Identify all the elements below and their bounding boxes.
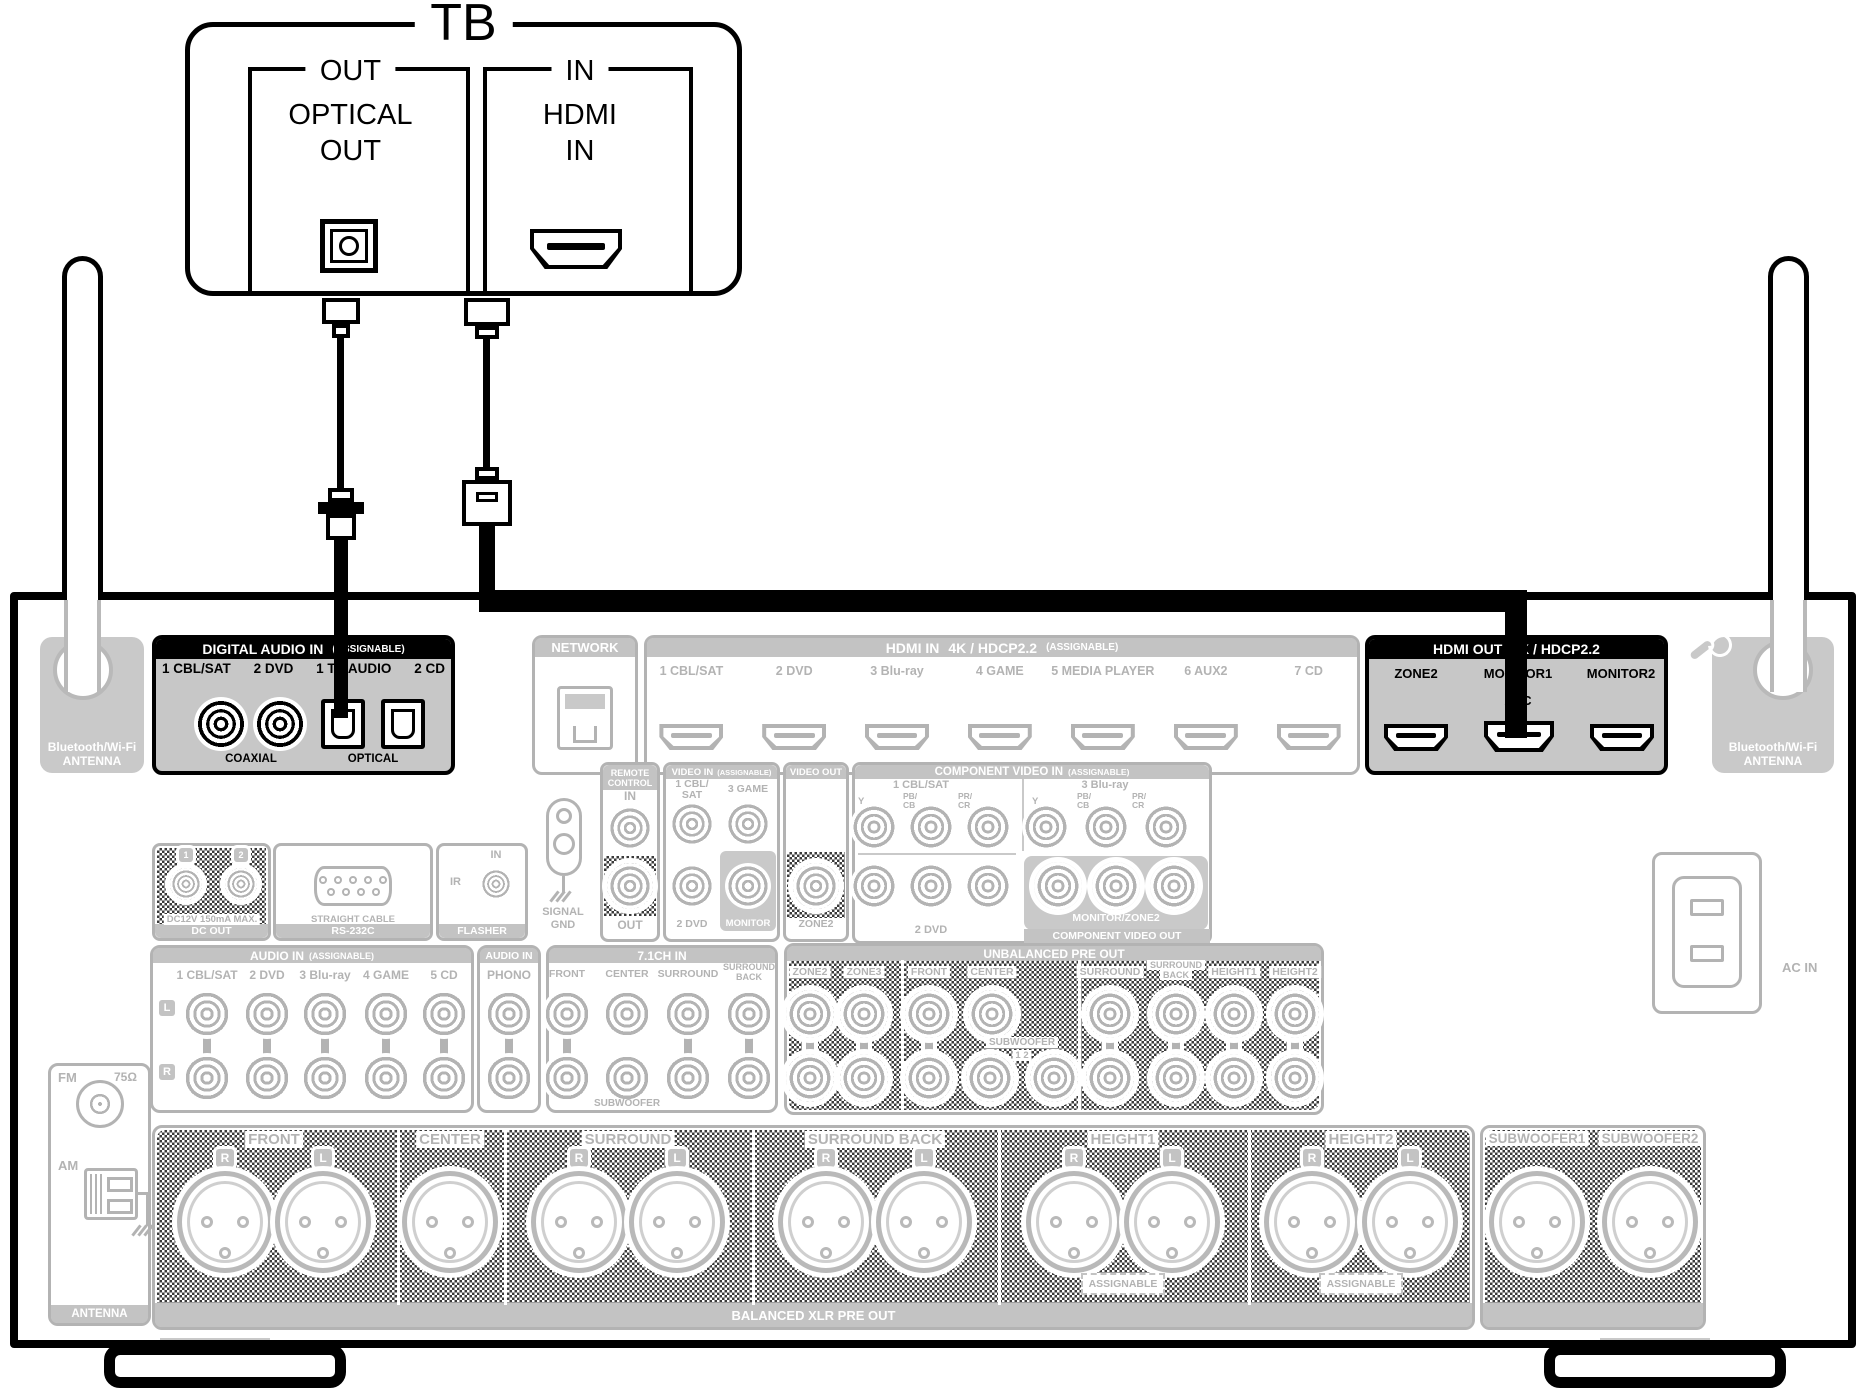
hdmi-port-label: 7 CD	[1294, 664, 1322, 678]
group-divider	[1248, 1129, 1251, 1305]
hdmi-out-monitor2-port-icon	[1590, 724, 1654, 751]
xlr-r-chip: R	[570, 1149, 588, 1167]
tv-optical-port-icon	[320, 219, 378, 273]
pre-out-jack	[1152, 990, 1200, 1038]
assignable-badge: ASSIGNABLE	[1081, 1273, 1165, 1295]
antenna-rod-base-right	[1770, 598, 1807, 692]
audio-jack	[300, 989, 350, 1039]
xlr-front-label: FRONT	[245, 1131, 303, 1148]
antenna-rod-right	[1768, 256, 1809, 600]
pre-out-jack	[786, 990, 834, 1038]
audio-port-label: 2 DVD	[249, 968, 284, 982]
header-note: (ASSIGNABLE)	[1068, 767, 1129, 777]
am-label: AM	[58, 1158, 78, 1173]
bt-label-1: Bluetooth/Wi-Fi	[48, 740, 137, 754]
component-out-jack	[1034, 862, 1082, 910]
tv-optical-label-1: OPTICAL	[288, 99, 412, 132]
hdmi-port-label: 4 GAME	[976, 664, 1024, 678]
video-in-header: VIDEO IN (ASSIGNABLE)	[666, 765, 777, 779]
am-ground-wire	[146, 1192, 149, 1226]
flasher-ir-jack	[480, 868, 512, 900]
video-in-game-label: 3 GAME	[728, 783, 768, 795]
unbal-height1-label: HEIGHT1	[1208, 966, 1260, 978]
ch71-jack	[663, 989, 713, 1039]
unbal-height2-label: HEIGHT2	[1269, 966, 1321, 978]
header-note: (ASSIGNABLE)	[309, 951, 374, 961]
xlr-connector	[1124, 1171, 1220, 1273]
hdmi-port-icon	[1071, 724, 1135, 750]
port-label: 2 DVD	[254, 661, 294, 676]
ch71-jack	[602, 1053, 652, 1103]
fm-label: FM	[58, 1070, 77, 1085]
chassis-foot-left	[104, 1344, 346, 1388]
phono-jack-l	[484, 989, 534, 1039]
ch71-sb-label-2: BACK	[736, 972, 762, 982]
hdmi-plug-top	[464, 298, 510, 326]
component-divider-h	[858, 853, 1016, 855]
subwoofer-xlr-footer	[1483, 1303, 1703, 1327]
component-jack	[850, 803, 898, 851]
bt-label-2: ANTENNA	[63, 754, 122, 768]
pre-out-jack	[786, 1054, 834, 1102]
flasher-ir-label: IR	[450, 876, 461, 888]
tv-out-group-label: OUT	[306, 55, 395, 88]
component-video-out-header: COMPONENT VIDEO OUT	[1024, 929, 1210, 943]
header-line2: CONTROL	[608, 778, 653, 788]
hdmi-port-icon	[659, 724, 723, 750]
ground-post-hole	[556, 808, 572, 824]
dc-out-2-chip: 2	[234, 848, 248, 862]
dc-out-spec: DC12V 150mA MAX.	[164, 914, 260, 925]
pre-out-jack	[1086, 1054, 1134, 1102]
ch71-jack	[663, 1053, 713, 1103]
xlr-connector	[531, 1171, 627, 1273]
ethernet-port-icon	[557, 686, 613, 750]
video-out-zone2-jack	[793, 863, 839, 909]
ch71-jack	[542, 1053, 592, 1103]
component-jack	[907, 803, 955, 851]
hdmi-port-label: 2 DVD	[776, 664, 813, 678]
am-terminal-slot	[107, 1199, 133, 1214]
chassis-foot-right	[1544, 1344, 1786, 1388]
component-video-in-header: COMPONENT VIDEO IN (ASSIGNABLE)	[855, 765, 1209, 779]
remote-out-jack	[607, 863, 653, 909]
cr-label: CR	[1132, 800, 1144, 810]
signal-gnd-label-1: SIGNAL	[542, 906, 584, 918]
pre-out-jack	[840, 1054, 888, 1102]
hdmi-in-port: 3 Blu-ray	[846, 664, 949, 750]
tv-hdmi-label-1: HDMI	[543, 99, 617, 132]
xlr-surround-label: SURROUND	[582, 1131, 675, 1148]
header-text: VIDEO IN	[672, 767, 714, 778]
hdmi-port-icon	[968, 724, 1032, 750]
network-header: NETWORK	[535, 638, 635, 657]
tv-title: TB	[414, 0, 512, 53]
digital-audio-port-labels: 1 CBL/SAT 2 DVD 1 TV AUDIO 2 CD	[162, 661, 445, 676]
audio-jack	[300, 1053, 350, 1103]
unbal-zone2-label: ZONE2	[789, 966, 830, 978]
video-monitor-jack	[725, 863, 771, 909]
remote-in-jack	[607, 805, 653, 851]
hdmi-cable-vertical-right	[1505, 590, 1527, 738]
tv-optical-port-hole	[339, 236, 359, 256]
ch71-subwoofer-label: SUBWOOFER	[594, 1098, 660, 1109]
phono-jack-r	[484, 1053, 534, 1103]
pre-out-jack	[1152, 1054, 1200, 1102]
unbal-zone3-label: ZONE3	[843, 966, 884, 978]
pre-out-jack	[1210, 990, 1258, 1038]
hdmi-plug2-body	[462, 480, 512, 526]
component-out-jack	[1092, 862, 1140, 910]
xlr-connector	[629, 1171, 725, 1273]
fm-coax-jack	[76, 1080, 124, 1128]
component-jack	[907, 862, 955, 910]
unbal-subwoofer-nums: 1 2	[1012, 1050, 1031, 1061]
signal-gnd-label-2: GND	[551, 919, 575, 931]
bt-label-1: Bluetooth/Wi-Fi	[1729, 740, 1818, 754]
tv-hdmi-in-box: IN HDMI IN	[483, 67, 693, 296]
component-jack	[1082, 803, 1130, 851]
audio-jack	[419, 1053, 469, 1103]
video-in-dvd-jack	[669, 863, 715, 909]
xlr-connector	[876, 1171, 972, 1273]
xlr-r-chip: R	[1065, 1149, 1083, 1167]
video-in-dvd-label: 2 DVD	[677, 918, 708, 930]
xlr-connector	[1264, 1171, 1360, 1273]
flasher-in-label: IN	[491, 849, 502, 861]
am-ground-symbol-icon	[132, 1224, 150, 1242]
ch71-sb-label-1: SURROUND	[723, 962, 775, 972]
xlr-height2-label: HEIGHT2	[1325, 1131, 1396, 1148]
xlr-l-chip: L	[1163, 1149, 1181, 1167]
xlr-l-chip: L	[915, 1149, 933, 1167]
hdmi-out-zone2-port-icon	[1384, 724, 1448, 751]
left-channel-chip: L	[159, 1000, 175, 1016]
port-label: 1 CBL/SAT	[162, 661, 231, 676]
balanced-xlr-header: BALANCED XLR PRE OUT	[155, 1303, 1472, 1327]
hdmi-in-ports: 1 CBL/SAT 2 DVD 3 Blu-ray 4 GAME 5 MEDIA…	[640, 664, 1360, 750]
pre-out-jack	[905, 990, 953, 1038]
dc-out-jack-1	[170, 868, 202, 900]
pre-out-jack	[1210, 1054, 1258, 1102]
header-line1: REMOTE	[611, 768, 650, 778]
ac-inlet-slot	[1690, 899, 1724, 916]
hdmi-port-icon	[865, 724, 929, 750]
xlr-surround-back-label: SURROUND BACK	[805, 1131, 945, 1148]
ch71-surround-label: SURROUND	[658, 968, 719, 980]
hdmi-cable-thin	[483, 339, 490, 467]
ground-post-screw	[553, 833, 575, 855]
xlr-connector	[177, 1171, 273, 1273]
hdmi-cable-horizontal	[479, 590, 1527, 612]
cb-label: CB	[903, 800, 915, 810]
ch71-jack	[542, 989, 592, 1039]
rs232c-port-icon	[314, 866, 392, 906]
ac-inlet-slot	[1690, 945, 1724, 962]
audio-port-label: 1 CBL/SAT	[176, 968, 237, 982]
pre-out-jack	[968, 990, 1016, 1038]
flasher-header: FLASHER	[439, 924, 525, 938]
hdmi-in-port: 5 MEDIA PLAYER	[1051, 664, 1154, 750]
xlr-l-chip: L	[314, 1149, 332, 1167]
header-spec: 4K / HDCP2.2	[948, 640, 1037, 656]
pre-out-jack	[905, 1054, 953, 1102]
hdmi-plug2-neck	[475, 467, 499, 480]
unbal-center-label: CENTER	[967, 966, 1016, 978]
xlr-subwoofer1-label: SUBWOOFER1	[1486, 1131, 1589, 1146]
xlr-height1-label: HEIGHT1	[1087, 1131, 1158, 1148]
audio-jack	[182, 989, 232, 1039]
bt-label-2: ANTENNA	[1744, 754, 1803, 768]
audio-jack	[361, 1053, 411, 1103]
unbal-sb-label-1: SURROUND	[1147, 960, 1205, 970]
assignable-badge: ASSIGNABLE	[1319, 1273, 1403, 1295]
xlr-r-chip: R	[216, 1149, 234, 1167]
ch71-header: 7.1CH IN	[549, 948, 775, 963]
tv-optical-out-box: OUT OPTICAL OUT	[248, 67, 470, 296]
am-terminal-icon	[84, 1168, 138, 1220]
xlr-connector	[402, 1171, 498, 1273]
hdmi-port-label: 3 Blu-ray	[870, 664, 924, 678]
rs232c-header: RS-232C	[276, 924, 430, 938]
component-g2-label: 3 Blu-ray	[1081, 779, 1128, 791]
digital-audio-in-header: DIGITAL AUDIO IN (ASSIGNABLE)	[156, 639, 451, 659]
hdmi-plug2-detail	[476, 492, 498, 502]
ac-in-label: AC IN	[1782, 960, 1817, 975]
hdmi-port-label: 5 MEDIA PLAYER	[1051, 664, 1154, 678]
phono-label: PHONO	[487, 968, 531, 982]
video-in-game-jack	[725, 801, 771, 847]
video-monitor-label: MONITOR	[726, 918, 771, 929]
hdmi-in-port: 2 DVD	[743, 664, 846, 750]
audio-port-label: 4 GAME	[363, 968, 409, 982]
hdmi-port-label: 6 AUX2	[1184, 664, 1227, 678]
optical-port-cd	[381, 699, 425, 749]
unbal-surround-label: SURROUND	[1077, 966, 1144, 978]
audio-in-header: AUDIO IN (ASSIGNABLE)	[153, 948, 471, 963]
header-text: HDMI OUT	[1433, 641, 1502, 657]
pre-out-jack	[1271, 1054, 1319, 1102]
audio-port-label: 3 Blu-ray	[299, 968, 350, 982]
ch71-jack	[602, 989, 652, 1039]
optical-plug2-body	[326, 514, 356, 540]
hdmi-port-icon	[1174, 724, 1238, 750]
tv-optical-label-2: OUT	[320, 135, 381, 168]
unbalanced-header: UNBALANCED PRE OUT	[787, 946, 1321, 961]
pre-out-jack	[1086, 990, 1134, 1038]
antenna-header: ANTENNA	[51, 1305, 148, 1323]
xlr-l-chip: L	[668, 1149, 686, 1167]
am-terminal-slot	[107, 1177, 133, 1192]
coaxial-jack-dvd	[253, 697, 307, 751]
pre-out-jack	[966, 1054, 1014, 1102]
remote-out-label: OUT	[617, 918, 642, 932]
header-text: DIGITAL AUDIO IN	[202, 641, 323, 657]
phono-header: AUDIO IN	[480, 948, 538, 963]
video-in-cbl-jack	[669, 801, 715, 847]
antenna-rod-left	[62, 256, 103, 600]
hdmi-in-port: 4 GAME	[948, 664, 1051, 750]
optical-plug2-flange	[318, 502, 364, 514]
group-divider	[998, 1129, 1001, 1305]
xlr-connector	[1026, 1171, 1122, 1273]
audio-jack	[361, 989, 411, 1039]
audio-jack	[419, 989, 469, 1039]
group-divider	[752, 1129, 755, 1305]
tv-in-group-label: IN	[551, 55, 608, 88]
header-note: (ASSIGNABLE)	[1046, 642, 1118, 653]
hdmi-in-port: 6 AUX2	[1154, 664, 1257, 750]
unbal-front-label: FRONT	[908, 966, 950, 978]
rs232c-spec: STRAIGHT CABLE	[311, 914, 395, 925]
right-channel-chip: R	[159, 1064, 175, 1080]
dc-out-header: DC OUT	[155, 924, 268, 938]
unbal-sb-label-2: BACK	[1160, 970, 1192, 980]
xlr-subwoofer2-label: SUBWOOFER2	[1599, 1131, 1702, 1146]
component-jack	[1022, 803, 1070, 851]
hdmi-port-label: 1 CBL/SAT	[660, 664, 724, 678]
header-text: HDMI IN	[886, 640, 940, 656]
ch71-jack	[724, 989, 774, 1039]
xlr-connector	[778, 1171, 874, 1273]
tv-hdmi-port-icon	[530, 229, 622, 269]
hdmi-in-header: HDMI IN 4K / HDCP2.2 (ASSIGNABLE)	[647, 638, 1357, 657]
component-g3-label: 2 DVD	[915, 924, 947, 936]
optical-label: OPTICAL	[348, 753, 398, 765]
antenna-rod-base-left	[64, 598, 101, 692]
xlr-center-label: CENTER	[416, 1131, 484, 1148]
coaxial-jack-cbl-sat	[194, 697, 248, 751]
port-label: 2 CD	[414, 661, 445, 676]
hdmi-port-icon	[762, 724, 826, 750]
group-divider	[901, 960, 904, 1110]
am-terminal-hatch	[90, 1174, 102, 1214]
hdmi-in-port: 7 CD	[1257, 664, 1360, 750]
component-jack	[850, 862, 898, 910]
cb-label: CB	[1077, 800, 1089, 810]
video-in-cbl-label-2: SAT	[682, 789, 702, 801]
xlr-r-chip: R	[817, 1149, 835, 1167]
remote-control-header: REMOTE CONTROL	[603, 765, 657, 790]
dc-out-1-chip: 1	[179, 848, 193, 862]
group-divider	[397, 1129, 400, 1305]
optical-plug-tip	[332, 324, 350, 338]
ch71-jack	[724, 1053, 774, 1103]
xlr-connector	[1602, 1171, 1698, 1273]
component-g1-label: 1 CBL/SAT	[893, 779, 949, 791]
ch71-center-label: CENTER	[605, 968, 648, 980]
pre-out-jack	[840, 990, 888, 1038]
xlr-connector	[1362, 1171, 1458, 1273]
hdmi-out-zone2-label: ZONE2	[1394, 666, 1437, 681]
component-jack	[1142, 803, 1190, 851]
component-jack	[964, 862, 1012, 910]
optical-cable-thick	[334, 540, 348, 718]
xlr-l-chip: L	[1401, 1149, 1419, 1167]
ch71-front-label: FRONT	[549, 968, 585, 980]
audio-jack	[242, 1053, 292, 1103]
hdmi-plug-top-neck	[475, 326, 499, 339]
optical-plug2-neck	[328, 488, 354, 502]
av-receiver-connection-diagram: { "tv": {"title":"TB","out_group":"OUT",…	[0, 0, 1866, 1379]
audio-jack	[182, 1053, 232, 1103]
group-divider	[1078, 960, 1081, 1110]
hdmi-out-monitor2-label: MONITOR2	[1587, 666, 1655, 681]
coaxial-label: COAXIAL	[225, 753, 277, 765]
component-out-jack	[1150, 862, 1198, 910]
audio-jack	[242, 989, 292, 1039]
xlr-connector	[1489, 1171, 1585, 1273]
hdmi-in-port: 1 CBL/SAT	[640, 664, 743, 750]
optical-plug-top	[322, 298, 360, 324]
cr-label: CR	[958, 800, 970, 810]
port-label: 1 TV AUDIO	[316, 661, 391, 676]
monitor-zone2-label: MONITOR/ZONE2	[1072, 912, 1159, 924]
tv-box: TB OUT OPTICAL OUT IN HDMI IN	[185, 22, 742, 296]
ac-inlet-icon	[1672, 876, 1742, 988]
component-jack	[964, 803, 1012, 851]
video-out-header: VIDEO OUT	[786, 765, 846, 779]
tv-hdmi-label-2: IN	[565, 135, 594, 168]
ground-post-icon	[546, 798, 582, 876]
header-note: (ASSIGNABLE)	[717, 768, 771, 777]
header-text: COMPONENT VIDEO IN	[935, 766, 1063, 778]
pre-out-jack	[1030, 1054, 1078, 1102]
xlr-connector	[275, 1171, 371, 1273]
optical-cable-thin	[337, 338, 344, 488]
hdmi-port-icon	[1277, 724, 1341, 750]
unbal-subwoofer-label: SUBWOOFER	[986, 1037, 1058, 1048]
pre-out-jack	[1271, 990, 1319, 1038]
audio-port-label: 5 CD	[430, 968, 457, 982]
dc-out-jack-2	[225, 868, 257, 900]
group-divider	[504, 1129, 507, 1305]
xlr-r-chip: R	[1303, 1149, 1321, 1167]
video-out-zone2-label: ZONE2	[798, 918, 833, 930]
fm-ohm-label: 75Ω	[114, 1070, 137, 1084]
remote-in-label: IN	[624, 789, 636, 803]
header-text: AUDIO IN	[250, 949, 304, 963]
